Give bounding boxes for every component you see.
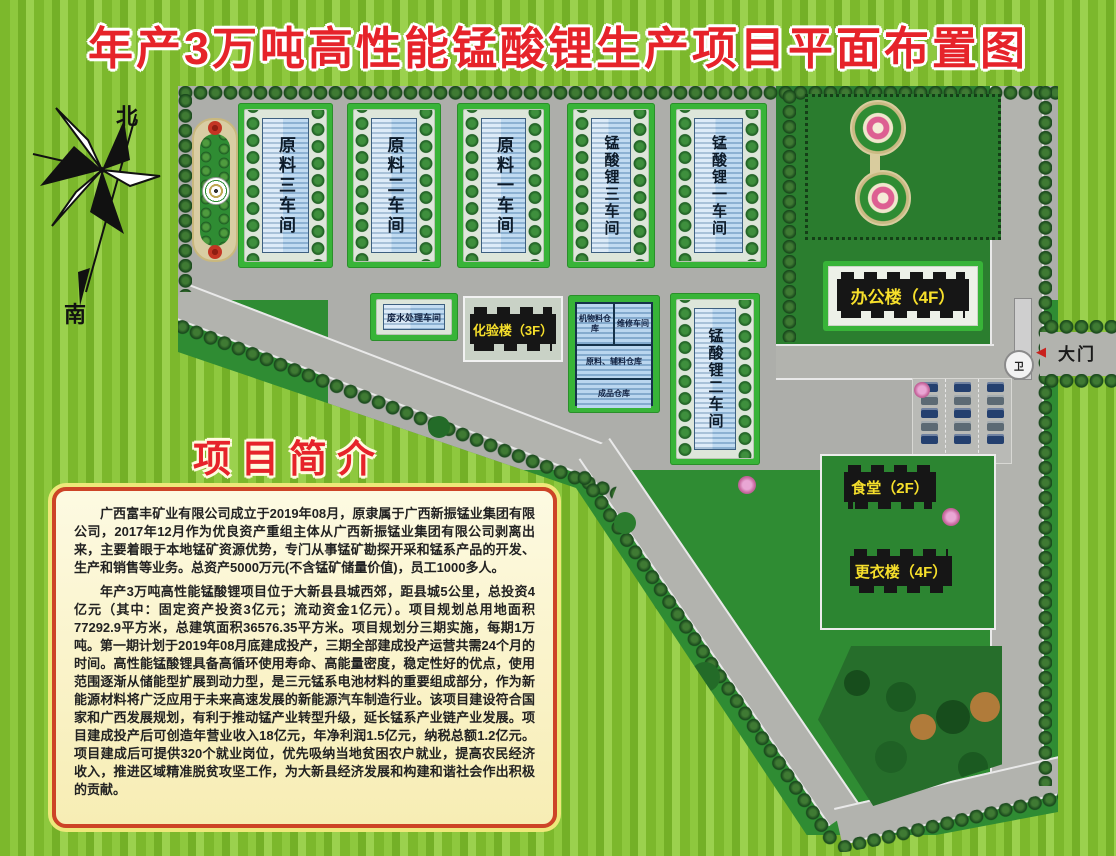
- car-icon: [954, 408, 971, 418]
- ornamental-garden: [805, 94, 1001, 240]
- pink-tree-icon: [738, 476, 756, 494]
- workshop-yard: 原料三车间: [244, 109, 327, 262]
- workshop-building: 原料二车间: [371, 118, 417, 253]
- intro-paragraph-2: 年产3万吨高性能锰酸锂项目位于大新县县城西郊，距县城5公里，总投资4亿元（其中：…: [74, 583, 535, 799]
- intro-heading: 项目简介: [193, 428, 385, 483]
- workshop-building: 锰酸锂三车间: [591, 118, 631, 253]
- workshop-yard: 原料二车间: [353, 109, 435, 262]
- flower-circle: [855, 170, 911, 226]
- car-icon: [921, 408, 938, 418]
- tree-col-garden: [782, 90, 796, 342]
- lab-building: 化验楼（3F）: [470, 314, 556, 344]
- workshop-building: 原料三车间: [262, 118, 309, 253]
- office-building: 办公楼（4F）: [837, 279, 969, 311]
- wastewater-building-pad: 废水处理车间: [370, 293, 458, 341]
- workshop-yard: 锰酸锂三车间: [573, 109, 649, 262]
- workshop-label: 原料一车间: [491, 136, 516, 236]
- compass-south-label: 南: [64, 302, 86, 327]
- lab-building-panel: 化验楼（3F）: [463, 296, 563, 362]
- car-icon: [987, 408, 1004, 418]
- guard-post: 卫: [1004, 350, 1034, 380]
- workshop-raw-material-2: 原料二车间: [347, 103, 441, 268]
- workshop-building: 锰酸锂一车间: [694, 118, 743, 253]
- workshop-label: 锰酸锂三车间: [601, 135, 622, 237]
- wastewater-building: 废水处理车间: [383, 304, 445, 330]
- car-icon: [987, 434, 1004, 444]
- gate-arrow-icon: ◀: [1036, 344, 1046, 360]
- tree-cluster-icon: [844, 670, 870, 696]
- workshop-label: 原料二车间: [382, 136, 407, 236]
- workshop-label: 锰酸锂一车间: [708, 135, 729, 237]
- gate-label: 大门: [1058, 340, 1096, 365]
- tree-row-gate-south: [1044, 374, 1116, 388]
- warehouse-finished-goods: 成品仓库: [577, 380, 651, 408]
- workshop-yard: 原料一车间: [463, 109, 544, 262]
- wastewater-label: 废水处理车间: [387, 311, 441, 324]
- maintenance-workshop: 维修车间: [615, 304, 651, 344]
- warehouse-raw-aux: 原料、辅料仓库: [577, 346, 651, 378]
- road-boundary-lower: [579, 438, 861, 826]
- workshop-label: 原料三车间: [273, 136, 298, 236]
- compass-north-label: 北: [116, 104, 138, 129]
- car-icon: [954, 434, 971, 444]
- workshop-lmo-3: 锰酸锂三车间: [567, 103, 655, 268]
- workshop-label: 锰酸锂二车间: [705, 328, 726, 430]
- page-title: 年产3万吨高性能锰酸锂生产项目平面布置图: [0, 12, 1116, 77]
- warehouse-block: 机物料仓库 维修车间 原料、辅料仓库 成品仓库: [568, 295, 660, 413]
- office-building-panel: 办公楼（4F）: [823, 261, 983, 331]
- workshop-yard: 锰酸锂二车间: [676, 299, 754, 459]
- compass-blade: [102, 170, 160, 186]
- canteen-lawn: 食堂（2F） 更衣楼（4F）: [820, 454, 996, 630]
- car-icon: [954, 382, 971, 392]
- parking-column: [946, 379, 979, 463]
- tree-row-boundary-lower: [574, 468, 839, 848]
- workshop-yard: 锰酸锂一车间: [676, 109, 761, 262]
- workshop-building: 原料一车间: [481, 118, 526, 253]
- wastewater-yard: 废水处理车间: [376, 299, 452, 335]
- tree-col-west: [178, 94, 192, 292]
- flower-circle: [850, 100, 906, 156]
- roundabout: [202, 177, 230, 205]
- intro-box: 广西富丰矿业有限公司成立于2019年08月，原隶属于广西新振锰业集团有限公司，2…: [52, 487, 557, 828]
- tree-row-gate-north: [1044, 320, 1116, 334]
- tree-col-east: [1038, 86, 1052, 786]
- locker-building: 更衣楼（4F）: [850, 556, 952, 586]
- tree-scatter-icon: [428, 416, 450, 438]
- entrance-median: [192, 118, 238, 262]
- road-office: [776, 344, 994, 380]
- car-icon: [954, 395, 971, 405]
- car-icon: [921, 434, 938, 444]
- car-icon: [987, 395, 1004, 405]
- parking-column: [979, 379, 1011, 463]
- flower-bed-icon: [208, 121, 222, 135]
- workshop-lmo-1: 锰酸锂一车间: [670, 103, 767, 268]
- workshop-lmo-2: 锰酸锂二车间: [670, 293, 760, 465]
- car-icon: [954, 421, 971, 431]
- car-icon: [987, 421, 1004, 431]
- compass: 北 南: [28, 92, 178, 332]
- flower-bed-icon: [208, 245, 222, 259]
- canteen-building: 食堂（2F）: [844, 472, 936, 502]
- compass-center: [99, 167, 105, 173]
- pink-tree-icon: [914, 382, 930, 398]
- pink-tree-icon: [942, 508, 960, 526]
- workshop-raw-material-3: 原料三车间: [238, 103, 333, 268]
- car-icon: [921, 421, 938, 431]
- workshop-raw-material-1: 原料一车间: [457, 103, 550, 268]
- car-icon: [987, 382, 1004, 392]
- workshop-building: 锰酸锂二车间: [694, 308, 736, 450]
- warehouse-packing-materials: 机物料仓库: [577, 304, 613, 344]
- intro-paragraph-1: 广西富丰矿业有限公司成立于2019年08月，原隶属于广西新振锰业集团有限公司，2…: [74, 505, 535, 577]
- warehouse-grid: 机物料仓库 维修车间 原料、辅料仓库 成品仓库: [575, 302, 653, 406]
